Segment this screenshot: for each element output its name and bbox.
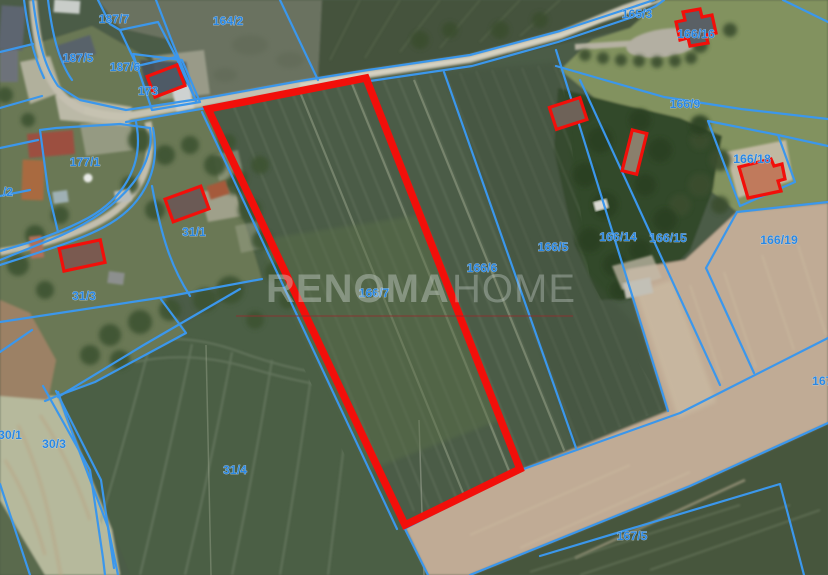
svg-text:166/5: 166/5 (538, 240, 569, 254)
svg-text:HOME: HOME (452, 267, 576, 311)
svg-text:RENOMA: RENOMA (266, 267, 450, 311)
svg-text:187/5: 187/5 (63, 51, 94, 65)
svg-text:30/3: 30/3 (42, 437, 66, 451)
svg-text:166/16: 166/16 (677, 27, 715, 41)
svg-text:166/18: 166/18 (733, 152, 771, 166)
svg-text:166/15: 166/15 (649, 231, 687, 245)
svg-text:/2: /2 (3, 185, 13, 199)
svg-text:167/3: 167/3 (812, 374, 828, 388)
svg-text:187/6: 187/6 (110, 60, 141, 74)
svg-text:167/5: 167/5 (617, 529, 648, 543)
svg-text:166/14: 166/14 (599, 230, 637, 244)
svg-text:164/2: 164/2 (213, 14, 244, 28)
svg-text:31/3: 31/3 (72, 289, 96, 303)
svg-text:30/1: 30/1 (0, 428, 22, 442)
svg-text:173: 173 (138, 84, 159, 98)
svg-text:187/7: 187/7 (99, 12, 130, 26)
svg-text:31/1: 31/1 (182, 225, 206, 239)
svg-text:166/19: 166/19 (760, 233, 798, 247)
svg-text:31/4: 31/4 (223, 463, 247, 477)
svg-text:166/9: 166/9 (670, 97, 701, 111)
svg-text:165/3: 165/3 (622, 7, 653, 21)
svg-text:177/1: 177/1 (70, 155, 101, 169)
